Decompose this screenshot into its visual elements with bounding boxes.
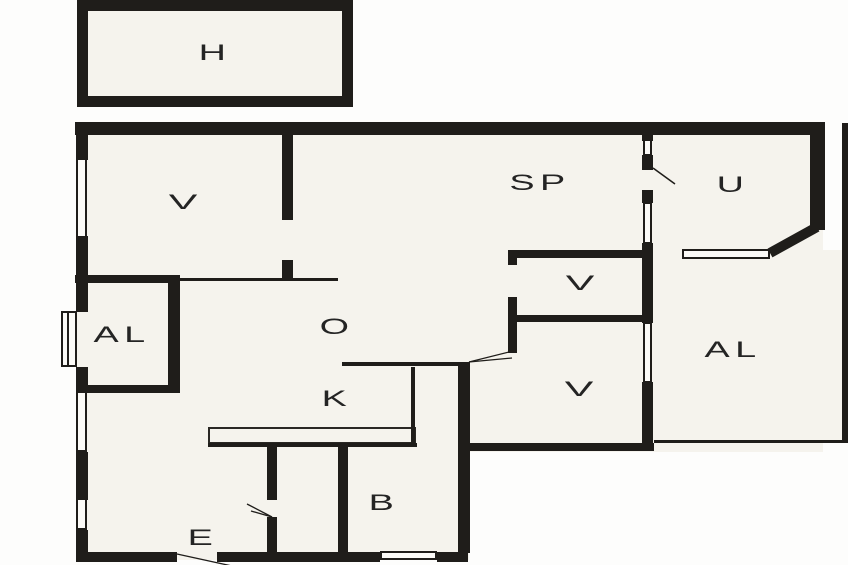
wall-segment (77, 96, 353, 107)
room-label-living: O (320, 316, 355, 338)
floor-plan-canvas: HVSPUALOVVALKBE (0, 0, 848, 565)
wall-segment (642, 155, 653, 170)
room-label-bathroom: B (369, 492, 400, 514)
wall-segment (76, 552, 177, 562)
room-label-entrance: E (188, 527, 219, 549)
room-label-alcove-east: AL (704, 339, 761, 361)
wall-segment (508, 297, 517, 353)
thin-wall (67, 313, 69, 366)
wall-segment (842, 123, 848, 443)
window (76, 498, 87, 530)
wall-segment (217, 552, 380, 562)
window (643, 139, 652, 156)
window (61, 311, 77, 367)
window (643, 202, 652, 244)
wall-segment (76, 236, 88, 312)
wall-segment (267, 445, 277, 500)
wall-segment (338, 445, 348, 553)
room-label-dining: SP (509, 172, 570, 194)
thin-wall (208, 443, 417, 447)
thin-wall (180, 278, 338, 281)
room-label-alcove-west: AL (93, 324, 150, 346)
wall-segment (508, 250, 517, 265)
room-label-room-v-upper: V (566, 273, 595, 294)
window (380, 551, 437, 560)
thin-wall (411, 367, 415, 443)
wall-segment (76, 452, 88, 500)
wall-segment (168, 275, 180, 392)
thin-wall (342, 362, 468, 366)
room-label-utility: U (717, 174, 750, 196)
kitchen-counter (208, 427, 416, 444)
window (76, 391, 87, 452)
wall-segment (470, 443, 654, 451)
wall-segment (75, 122, 825, 135)
room-label-kitchen: K (322, 388, 353, 410)
wall-segment (77, 0, 353, 11)
wall-segment (508, 250, 653, 258)
wall-segment (342, 0, 353, 107)
wall-segment (282, 122, 293, 220)
window (76, 158, 87, 238)
wall-segment (810, 122, 825, 230)
room-label-garage: H (199, 42, 232, 64)
thin-wall (654, 440, 848, 443)
room-label-room-v-lower: V (565, 379, 594, 400)
window (643, 322, 652, 383)
wall-segment (76, 122, 88, 160)
wall-segment (77, 0, 88, 107)
room-label-bedroom-nw: V (169, 192, 198, 213)
wall-segment (458, 362, 470, 553)
wall-segment (282, 260, 293, 278)
wall-segment (642, 382, 653, 450)
wall-segment (437, 552, 468, 562)
window (682, 249, 770, 259)
wall-segment (267, 517, 277, 553)
wall-segment (517, 315, 653, 322)
wall-segment (75, 275, 180, 283)
wall-segment (83, 385, 180, 393)
